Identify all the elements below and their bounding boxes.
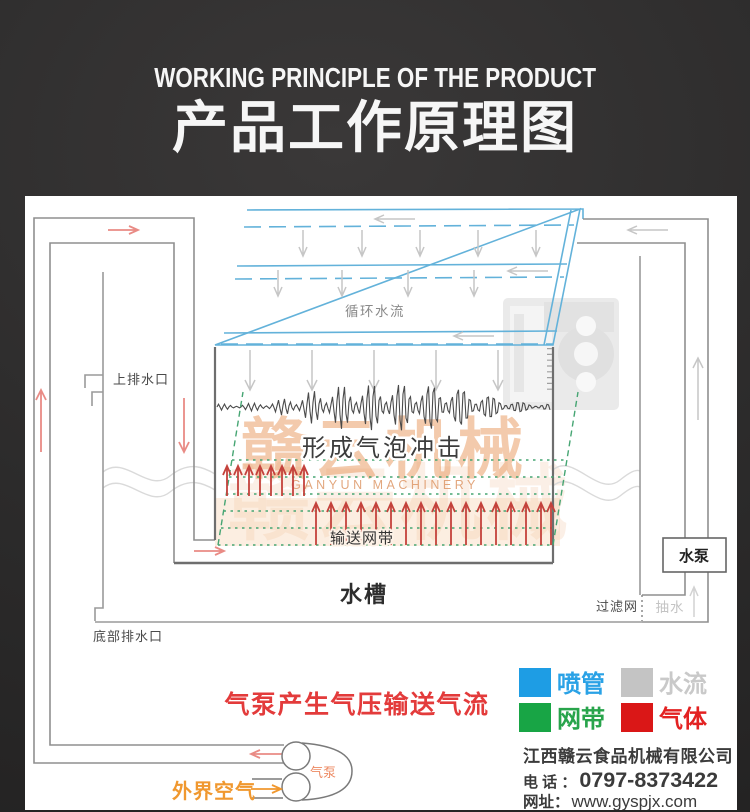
watermark-stamp — [503, 298, 619, 410]
diagram-panel: 赣云机械 赣云机械 GANYUN MACHINERY — [25, 196, 737, 810]
watermark-subtext: GANYUN MACHINERY — [291, 478, 479, 492]
air-caption: 气泵产生气压输送气流 — [223, 690, 489, 719]
company-phone: 电 话 ：0797-8373422 — [523, 768, 718, 792]
legend-swatch-belt — [519, 703, 551, 732]
legend-label-gas: 气体 — [658, 705, 708, 733]
upper-drain-label: 上排水口 — [113, 372, 169, 387]
circulating-water-label: 循环水流 — [345, 304, 405, 319]
filter-screen-label: 过滤网 — [596, 599, 638, 614]
legend-label-belt: 网带 — [557, 706, 605, 733]
spray-down-arrows-row2 — [274, 270, 478, 296]
water-up-arrows — [690, 358, 703, 617]
legend: 喷管 水流 网带 气体 — [519, 668, 708, 733]
air-pump-assembly — [252, 742, 352, 801]
bottom-drain-label: 底部排水口 — [93, 629, 163, 644]
conveyor-belt-label: 输送网带 — [330, 530, 394, 547]
bubble-impact-label: 形成气泡冲击 — [302, 435, 464, 462]
outside-air-label: 外界空气 — [172, 779, 256, 803]
page: WORKING PRINCIPLE OF THE PRODUCT 产品工作原理图 — [0, 0, 750, 812]
page-title-zh: 产品工作原理图 — [0, 100, 750, 156]
page-title-en: WORKING PRINCIPLE OF THE PRODUCT — [154, 62, 596, 94]
legend-swatch-water — [621, 668, 653, 697]
water-pump-label: 水泵 — [679, 547, 709, 565]
spray-down-arrows-row1 — [299, 230, 540, 256]
company-info: 江西赣云食品机械有限公司 电 话 ：0797-8373422 网址：www.gy… — [523, 746, 733, 810]
water-tank-label: 水槽 — [340, 582, 388, 607]
company-name: 江西赣云食品机械有限公司 — [523, 746, 733, 766]
header: WORKING PRINCIPLE OF THE PRODUCT 产品工作原理图 — [0, 0, 750, 196]
legend-swatch-spray — [519, 668, 551, 697]
company-website: 网址：www.gyspjx.com — [523, 792, 697, 810]
legend-swatch-gas — [621, 703, 653, 732]
spray-down-arrows-row3 — [245, 350, 503, 390]
working-principle-diagram: 赣云机械 赣云机械 GANYUN MACHINERY — [25, 196, 737, 810]
suction-label: 抽水 — [656, 600, 685, 615]
legend-label-water: 水流 — [659, 671, 707, 698]
air-pump-label: 气泵 — [310, 765, 336, 780]
legend-label-spray: 喷管 — [557, 670, 605, 698]
